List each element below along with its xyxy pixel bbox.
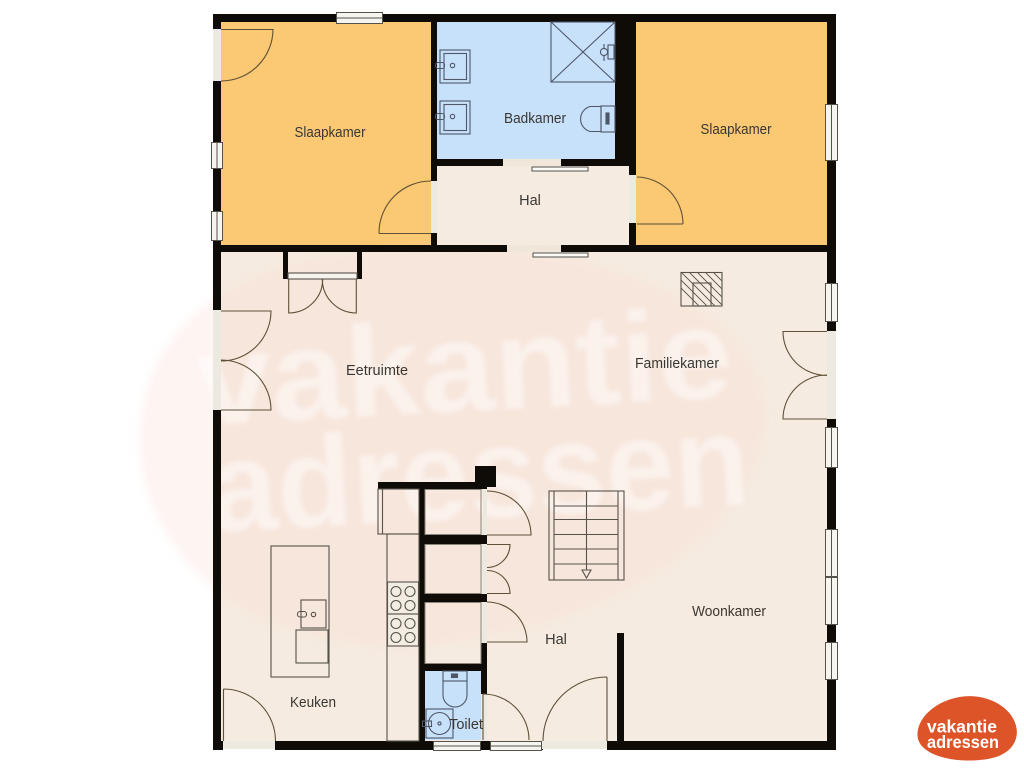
svg-text:Hal: Hal	[545, 632, 567, 648]
svg-text:Woonkamer: Woonkamer	[692, 604, 766, 620]
svg-text:Toilet: Toilet	[449, 717, 483, 733]
svg-text:Slaapkamer: Slaapkamer	[295, 125, 366, 141]
svg-text:Familiekamer: Familiekamer	[635, 356, 719, 372]
svg-text:Badkamer: Badkamer	[504, 111, 566, 127]
svg-text:Slaapkamer: Slaapkamer	[701, 122, 772, 138]
svg-text:adressen: adressen	[927, 732, 999, 752]
svg-text:Hal: Hal	[519, 193, 541, 209]
svg-text:Eetruimte: Eetruimte	[346, 363, 408, 379]
svg-text:Keuken: Keuken	[290, 695, 336, 711]
